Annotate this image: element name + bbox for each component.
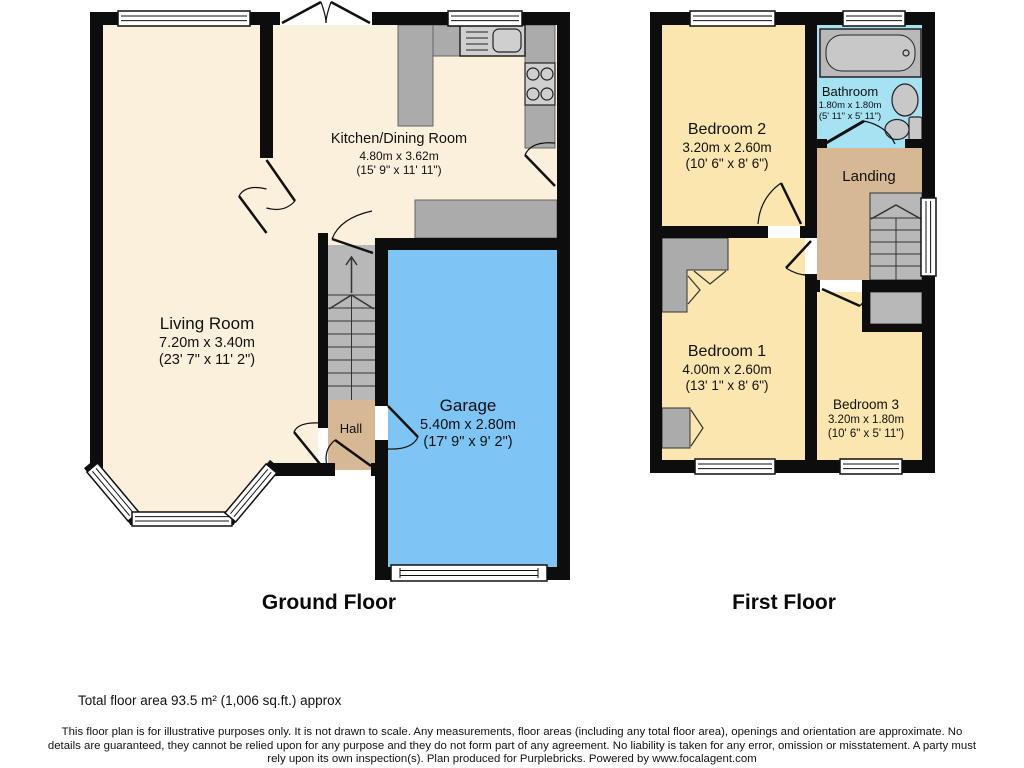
ground-floor-title: Ground Floor [262,591,396,615]
bathroom-label: Bathroom 1.80m x 1.80m (5' 11" x 5' 11") [819,84,882,123]
room-metric: 4.80m x 3.62m [331,149,467,164]
hob [525,63,555,105]
bedroom1-window [695,459,775,474]
landing-window [921,198,936,276]
first-floor-title: First Floor [732,591,836,615]
total-floor-area: Total floor area 93.5 m² (1,006 sq.ft.) … [78,693,341,708]
room-metric: 7.20m x 3.40m [159,335,255,353]
room-imperial: (10' 6" x 5' 11") [828,427,904,441]
room-imperial: (23' 7" x 11' 2") [159,352,255,370]
room-imperial: (17' 9" x 9' 2") [420,434,516,452]
bathroom-window [843,11,905,26]
room-imperial: (10' 6" x 8' 6") [682,156,771,172]
kitchen-label: Kitchen/Dining Room 4.80m x 3.62m (15' 9… [331,131,467,178]
room-metric: 3.20m x 2.60m [682,140,771,156]
room-metric: 5.40m x 2.80m [420,417,516,435]
disclaimer-text: This floor plan is for illustrative purp… [47,726,977,767]
room-metric: 4.00m x 2.60m [682,362,771,378]
bathroom-sink [892,84,918,116]
kitchen-sink [460,25,525,56]
bedroom2-label: Bedroom 2 3.20m x 2.60m (10' 6" x 8' 6") [682,120,771,172]
bedroom2-window [690,11,775,26]
garage-door [391,565,547,581]
bedroom1-label: Bedroom 1 4.00m x 2.60m (13' 1" x 8' 6") [682,342,771,394]
kitchen-window [448,11,522,26]
bedroom3-label: Bedroom 3 3.20m x 1.80m (10' 6" x 5' 11"… [828,397,904,442]
room-name: Bathroom [819,84,882,100]
worktop [415,200,557,238]
bay-window-centre [132,512,232,526]
bathtub [820,29,921,77]
room-name: Living Room [159,314,255,335]
room-name: Landing [842,168,895,186]
bedroom3-window [840,459,902,474]
room-imperial: (15' 9" x 11' 11") [331,163,467,178]
room-name: Bedroom 2 [682,120,771,140]
staircase-up [870,193,922,280]
room-name: Hall [340,421,362,437]
room-name: Bedroom 3 [828,397,904,413]
french-doors [282,2,370,23]
room-name: Bedroom 1 [682,342,771,362]
room-metric: 3.20m x 1.80m [828,413,904,427]
room-imperial: (13' 1" x 8' 6") [682,378,771,394]
room-imperial: (5' 11" x 5' 11") [819,111,882,123]
garage-label: Garage 5.40m x 2.80m (17' 9" x 9' 2") [420,396,516,452]
floorplan-canvas: Living Room 7.20m x 3.40m (23' 7" x 11' … [0,0,1024,768]
living-room-label: Living Room 7.20m x 3.40m (23' 7" x 11' … [159,314,255,370]
hall-label: Hall [340,421,362,437]
toilet [885,117,922,142]
stairs-cupboard [870,292,922,324]
staircase-down [328,245,375,400]
room-name: Kitchen/Dining Room [331,131,467,149]
living-room-window [118,11,250,26]
ground-floor-drawing [88,8,572,583]
landing-label: Landing [842,168,895,186]
room-metric: 1.80m x 1.80m [819,100,882,112]
room-name: Garage [420,396,516,417]
